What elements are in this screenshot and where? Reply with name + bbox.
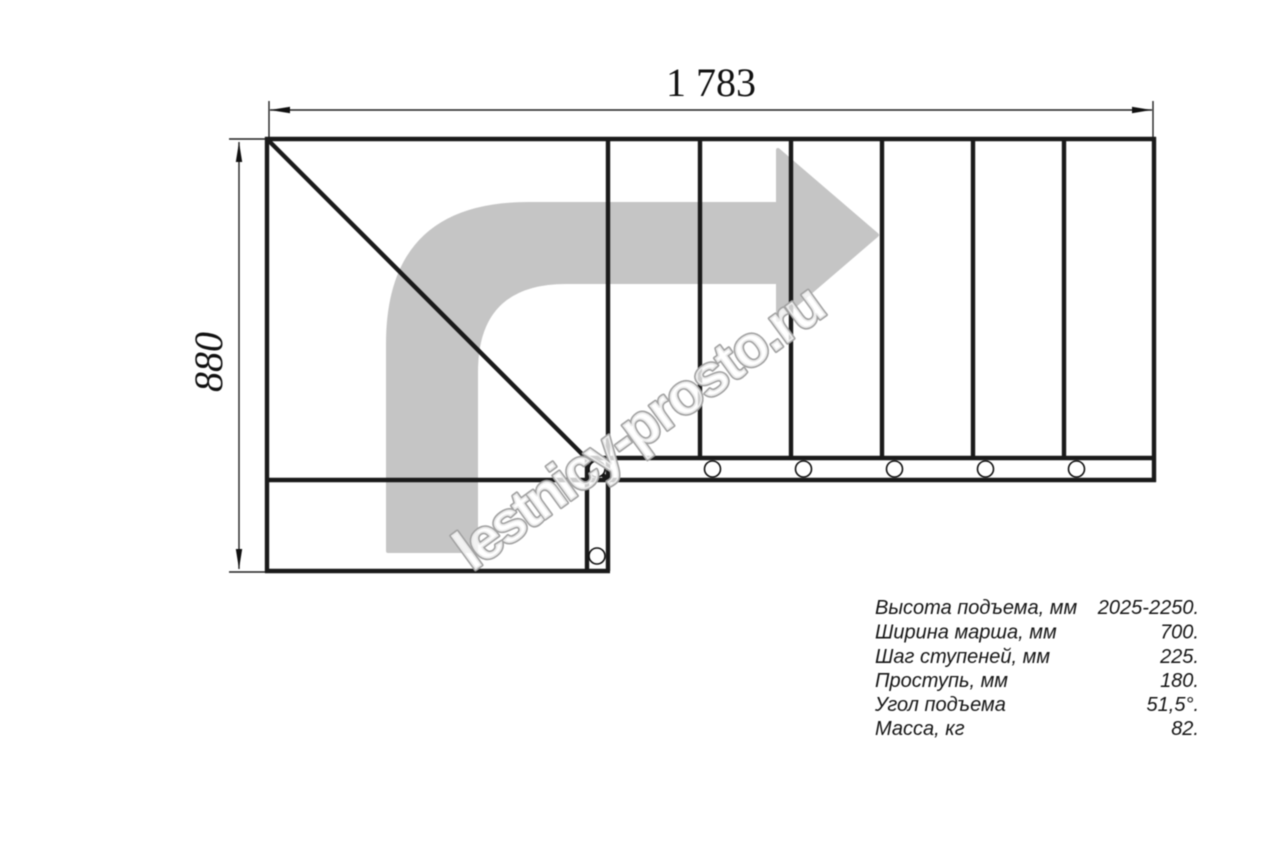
svg-text:225.: 225. — [1159, 646, 1199, 668]
svg-text:Масса, кг: Масса, кг — [875, 718, 965, 740]
svg-text:51,5°.: 51,5°. — [1147, 694, 1199, 716]
svg-text:880: 880 — [186, 332, 231, 392]
svg-text:Шаг ступеней, мм: Шаг ступеней, мм — [875, 646, 1050, 668]
svg-text:Ширина марша, мм: Ширина марша, мм — [875, 622, 1057, 644]
svg-text:lestnicy-prosto.ru: lestnicy-prosto.ru — [442, 272, 836, 583]
svg-text:2025-2250.: 2025-2250. — [1097, 597, 1199, 619]
svg-text:Высота подъема, мм: Высота подъема, мм — [875, 597, 1077, 619]
svg-text:1 783: 1 783 — [666, 60, 756, 105]
svg-text:Проступь, мм: Проступь, мм — [875, 670, 1008, 692]
svg-text:Угол подъема: Угол подъема — [874, 694, 1006, 716]
svg-text:82.: 82. — [1171, 718, 1199, 740]
svg-text:700.: 700. — [1160, 622, 1199, 644]
svg-text:180.: 180. — [1160, 670, 1199, 692]
